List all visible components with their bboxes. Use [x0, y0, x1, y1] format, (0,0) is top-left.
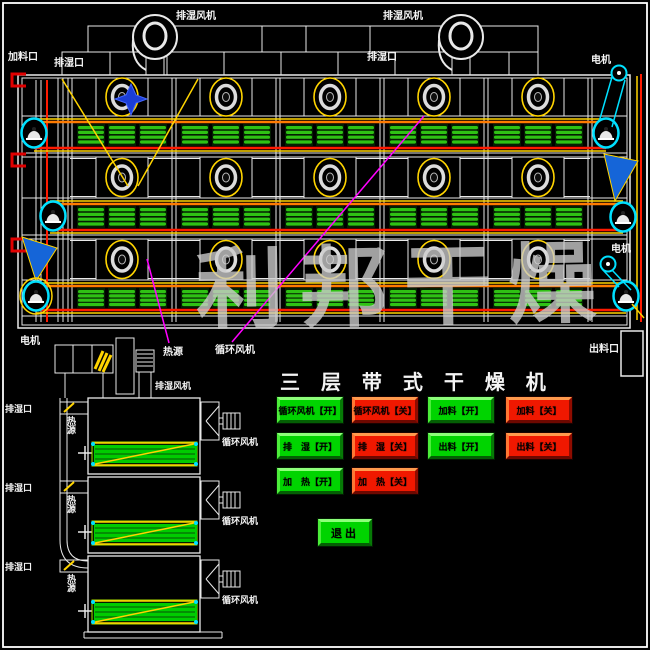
circulation-fan-label: 循环风机 — [222, 594, 258, 606]
transfer-chute — [604, 154, 638, 201]
heat-source-label: 热源 — [65, 415, 76, 435]
exhaust-off-button[interactable]: 排 湿【关】 — [352, 433, 418, 459]
exhaust-fan-label: 排湿风机 — [383, 9, 423, 22]
exhaust-port-label: 排湿口 — [5, 482, 32, 494]
discharge-off-button[interactable]: 出料【关】 — [506, 433, 572, 459]
exhaust-fan-label: 排湿风机 — [176, 9, 216, 22]
exhaust-port-label: 排湿口 — [54, 56, 84, 69]
exhaust-port-label: 排湿口 — [5, 561, 32, 573]
exit-button[interactable]: 退出 — [318, 519, 372, 546]
exhaust-port-label: 排湿口 — [367, 50, 397, 63]
circulation-fan-label: 循环风机 — [222, 515, 258, 527]
heating-off-button[interactable]: 加 热【关】 — [352, 468, 418, 494]
transfer-chute — [22, 237, 57, 281]
circulation-fan-label: 循环风机 — [215, 343, 255, 356]
exhaust-on-button[interactable]: 排 湿【开】 — [277, 433, 343, 459]
circulation-fan-on-button[interactable]: 循环风机【开】 — [277, 397, 343, 423]
exhaust-fan-label: 排湿风机 — [155, 380, 191, 392]
motor-label: 电机 — [611, 242, 631, 255]
heat-source-label: 热源 — [65, 494, 76, 514]
feed-off-button[interactable]: 加料【关】 — [506, 397, 572, 423]
hmi-canvas: 排湿风机 排湿风机 加料口 排湿口 排湿口 电机 电机 电机 热源 循环风机 出… — [0, 0, 650, 650]
dryer-front-view — [3, 3, 647, 647]
feed-on-button[interactable]: 加料【开】 — [428, 397, 494, 423]
motor-label: 电机 — [591, 53, 611, 66]
feed-port-label: 加料口 — [7, 50, 38, 63]
exhaust-port-label: 排湿口 — [5, 403, 32, 415]
heat-source-label: 热源 — [65, 573, 76, 593]
heat-source-label: 热源 — [163, 345, 183, 358]
page-title: 三 层 带 式 干 燥 机 — [280, 366, 550, 395]
discharge-on-button[interactable]: 出料【开】 — [428, 433, 494, 459]
discharge-port-label: 出料口 — [589, 342, 619, 355]
heating-on-button[interactable]: 加 热【开】 — [277, 468, 343, 494]
circulation-fan-label: 循环风机 — [222, 436, 258, 448]
motor-label: 电机 — [20, 334, 40, 347]
dryer-schematic: 排湿风机 排湿风机 加料口 排湿口 排湿口 电机 电机 电机 热源 循环风机 出… — [0, 0, 650, 650]
circulation-fan-off-button[interactable]: 循环风机【关】 — [352, 397, 418, 423]
